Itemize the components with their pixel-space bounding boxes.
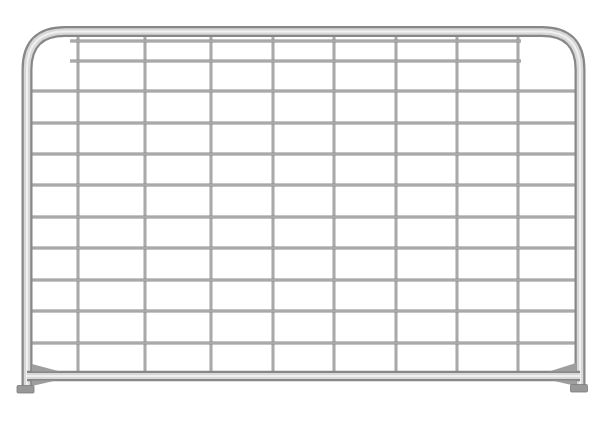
gate-frame-tube [27, 32, 580, 392]
frame-feet [17, 385, 588, 394]
mesh-panel [27, 33, 580, 376]
product-photo-gate [0, 0, 603, 424]
gate-svg [0, 0, 603, 424]
